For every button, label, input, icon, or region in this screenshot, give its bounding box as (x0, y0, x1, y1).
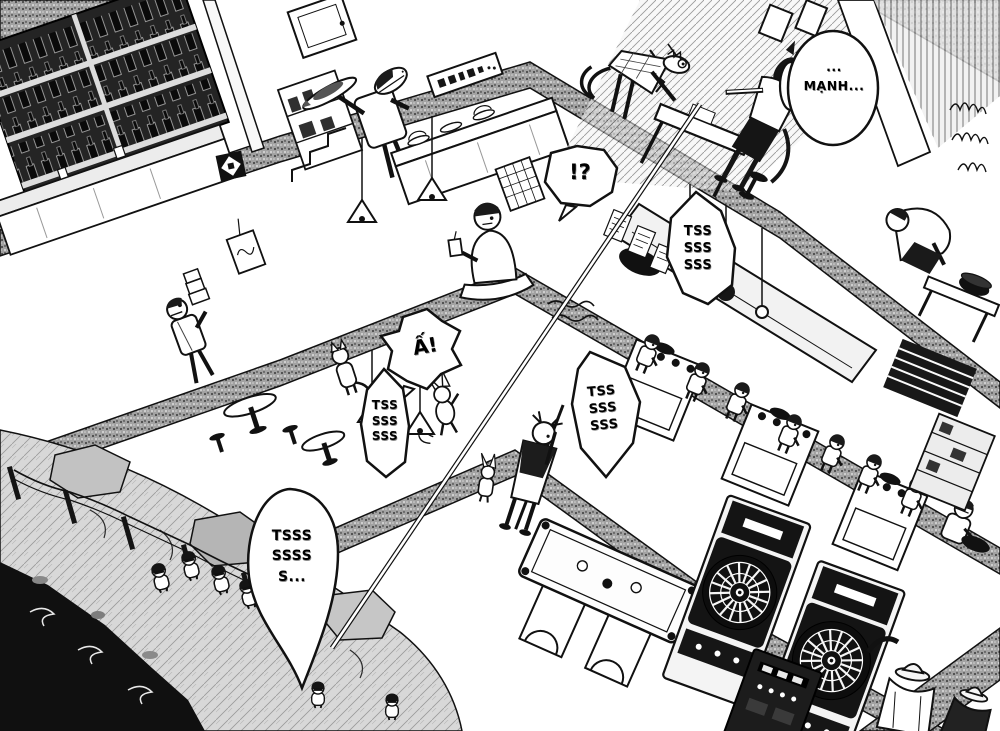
speech-bubble-shock (545, 146, 617, 206)
miner-figure (385, 693, 399, 720)
waiter-figure (156, 269, 235, 385)
bank-stone (91, 611, 105, 619)
speech-bubble-hiss-left (361, 369, 409, 477)
speech-bubble-shock-tail (559, 205, 576, 221)
door (288, 0, 357, 58)
scribble (958, 163, 986, 172)
bank-stone (32, 576, 48, 584)
scribble (952, 133, 988, 144)
stool (282, 423, 303, 446)
stool (209, 431, 230, 454)
seated-drinker (444, 198, 535, 304)
wall-ornament (216, 151, 247, 182)
bank-stone (142, 651, 158, 659)
speech-bubble-manh (788, 31, 878, 145)
dark-grille (883, 339, 977, 417)
fedora-figure (877, 660, 940, 731)
miner-figure (311, 681, 325, 708)
hanging-plaque (221, 215, 265, 273)
underground-area (0, 430, 462, 731)
bar-area (0, 0, 237, 255)
speech-bubble-hiss-upper (667, 192, 735, 304)
round-table (300, 428, 352, 472)
manga-art (0, 0, 1000, 731)
manga-page: ... MẠNH... !? TSS SSS SSS Ấ! TSS SSS SS… (0, 0, 1000, 731)
hunched-figure (873, 197, 961, 278)
